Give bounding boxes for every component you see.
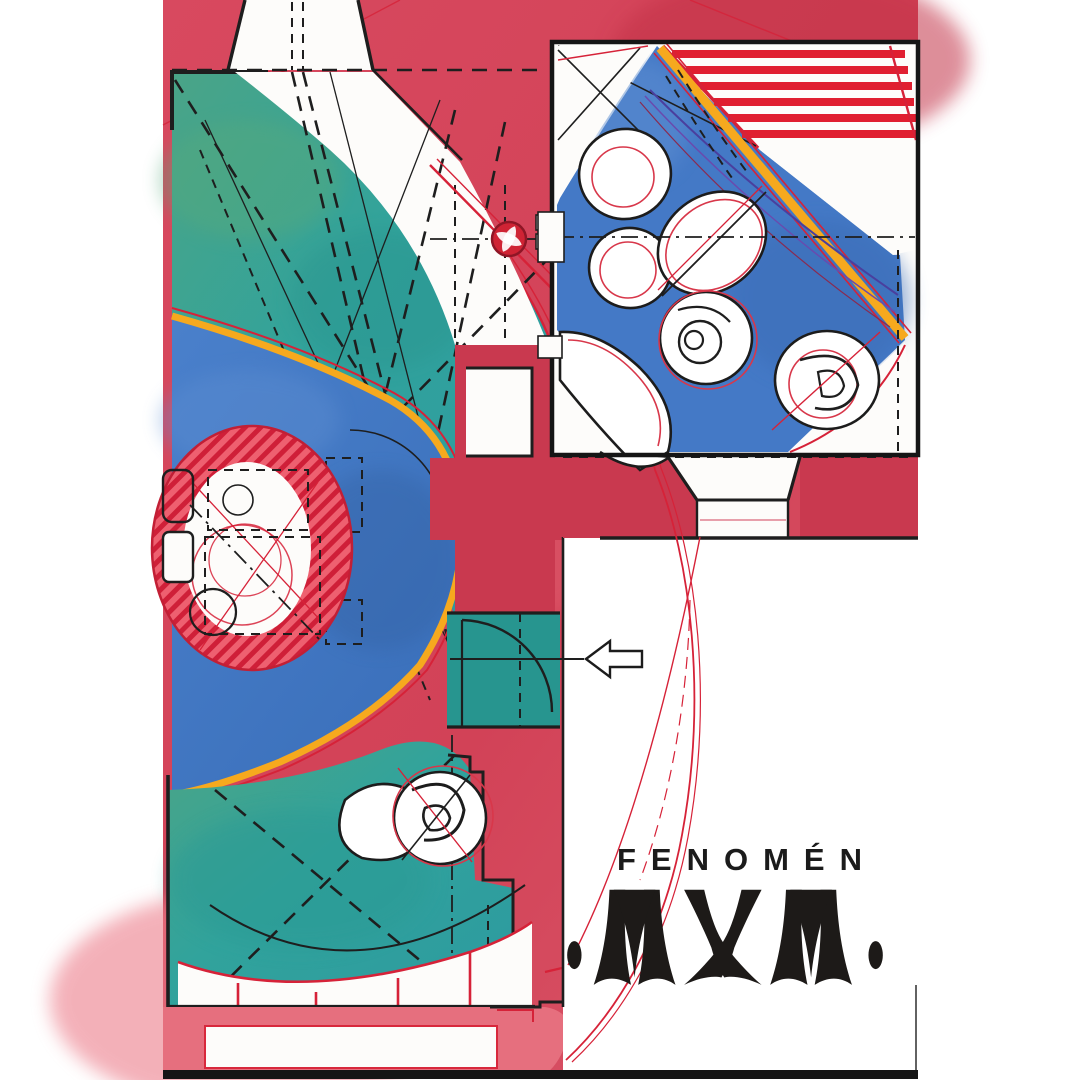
cover-title: FENOMÉN [570,842,924,878]
upper-right-gallery-room [538,42,918,470]
logo-letter-m1 [594,890,676,985]
logo-letter-x [684,890,761,985]
gallery-neck [563,457,918,538]
sanitary-core [152,426,352,670]
bottom-red-band [163,1002,569,1072]
logo-dot-right [868,941,882,969]
book-cover: FENOMÉN ·MXM· [0,0,1080,1080]
page-bottom-edge [163,1070,918,1079]
mxm-logo-text: ·MXM· [742,878,743,879]
logo-dot-left [567,941,581,969]
logo-letter-m2 [770,890,852,985]
mxm-logo [560,886,890,998]
brand-block: FENOMÉN ·MXM· [560,842,924,998]
